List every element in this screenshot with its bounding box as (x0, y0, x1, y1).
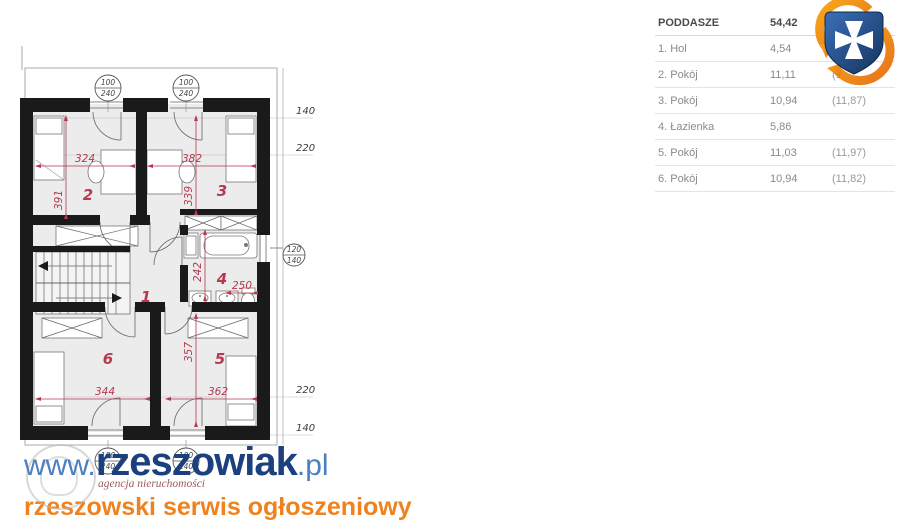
dim-room6-width: 344 (95, 386, 115, 398)
room-name: 5. Pokój (655, 147, 770, 159)
dim-room2-height: 391 (53, 190, 65, 210)
room-area-alt: (11,97) (832, 147, 895, 159)
dim-room3-width: 382 (182, 153, 202, 165)
dim-220-top: 220 (296, 143, 315, 154)
bed-room6 (34, 352, 64, 424)
room-area-alt: (11,82) (832, 173, 895, 185)
dim-140-bottom: 140 (296, 423, 315, 434)
watermark-url-www: www. (24, 449, 96, 482)
svg-text:100: 100 (179, 78, 194, 87)
room-number-6: 6 (103, 350, 113, 368)
table-header-level: PODDASZE (655, 17, 770, 29)
rzeszow-crest-logo (813, 0, 897, 88)
bed-room5 (226, 356, 256, 426)
wardrobe-room6 (42, 318, 102, 338)
dim-room2-width: 324 (75, 153, 95, 165)
svg-text:140: 140 (287, 256, 302, 265)
wardrobe-hall (56, 226, 138, 246)
window-tag-right: 120 140 (283, 244, 305, 266)
dim-room5-height: 357 (183, 342, 195, 362)
watermark-url-tld: .pl (297, 449, 329, 482)
room-area: 11,03 (770, 147, 832, 159)
dim-140-top: 140 (296, 106, 315, 117)
wardrobe-bath (185, 216, 257, 230)
room-name: 6. Pokój (655, 173, 770, 185)
wardrobe-room5 (188, 318, 248, 338)
room-name: 3. Pokój (655, 95, 770, 107)
room-name: 4. Łazienka (655, 121, 770, 133)
room-number-3: 3 (217, 182, 227, 200)
room-area: 5,86 (770, 121, 832, 133)
dim-bath-height: 242 (192, 262, 204, 282)
dim-220-bottom: 220 (296, 385, 315, 396)
crest-shield (825, 12, 883, 74)
table-row: 5. Pokój 11,03 (11,97) (655, 140, 895, 166)
dim-room5-width: 362 (208, 386, 228, 398)
room-area: 10,94 (770, 173, 832, 185)
room-number-5: 5 (215, 350, 225, 368)
dim-room3-height: 339 (183, 186, 195, 206)
room-number-2: 2 (83, 186, 93, 204)
bed-room2 (34, 116, 64, 180)
room-name: 2. Pokój (655, 69, 770, 81)
svg-text:240: 240 (101, 89, 116, 98)
svg-text:120: 120 (287, 245, 302, 254)
table-row: 6. Pokój 10,94 (11,82) (655, 166, 895, 192)
room-number-4: 4 (216, 270, 227, 288)
dim-bath-width: 250 (232, 280, 252, 292)
bathtub (200, 233, 257, 258)
room-name: 1. Hol (655, 43, 770, 55)
shower-basin (184, 233, 198, 258)
room-area-alt: (11,87) (832, 95, 895, 107)
svg-text:100: 100 (101, 78, 116, 87)
room-area: 10,94 (770, 95, 832, 107)
table-row: 4. Łazienka 5,86 (655, 114, 895, 140)
table-row: 3. Pokój 10,94 (11,87) (655, 88, 895, 114)
watermark-agency-text: agencja nieruchomości (98, 478, 205, 490)
listing-screenshot: { "plan": { "room_numbers": {"hol":"1","… (0, 0, 900, 524)
watermark: www.rzeszowiak.pl agencja nieruchomości … (24, 442, 354, 522)
bed-room3 (226, 116, 256, 182)
room-number-hol: 1 (141, 288, 151, 306)
svg-text:240: 240 (179, 89, 194, 98)
